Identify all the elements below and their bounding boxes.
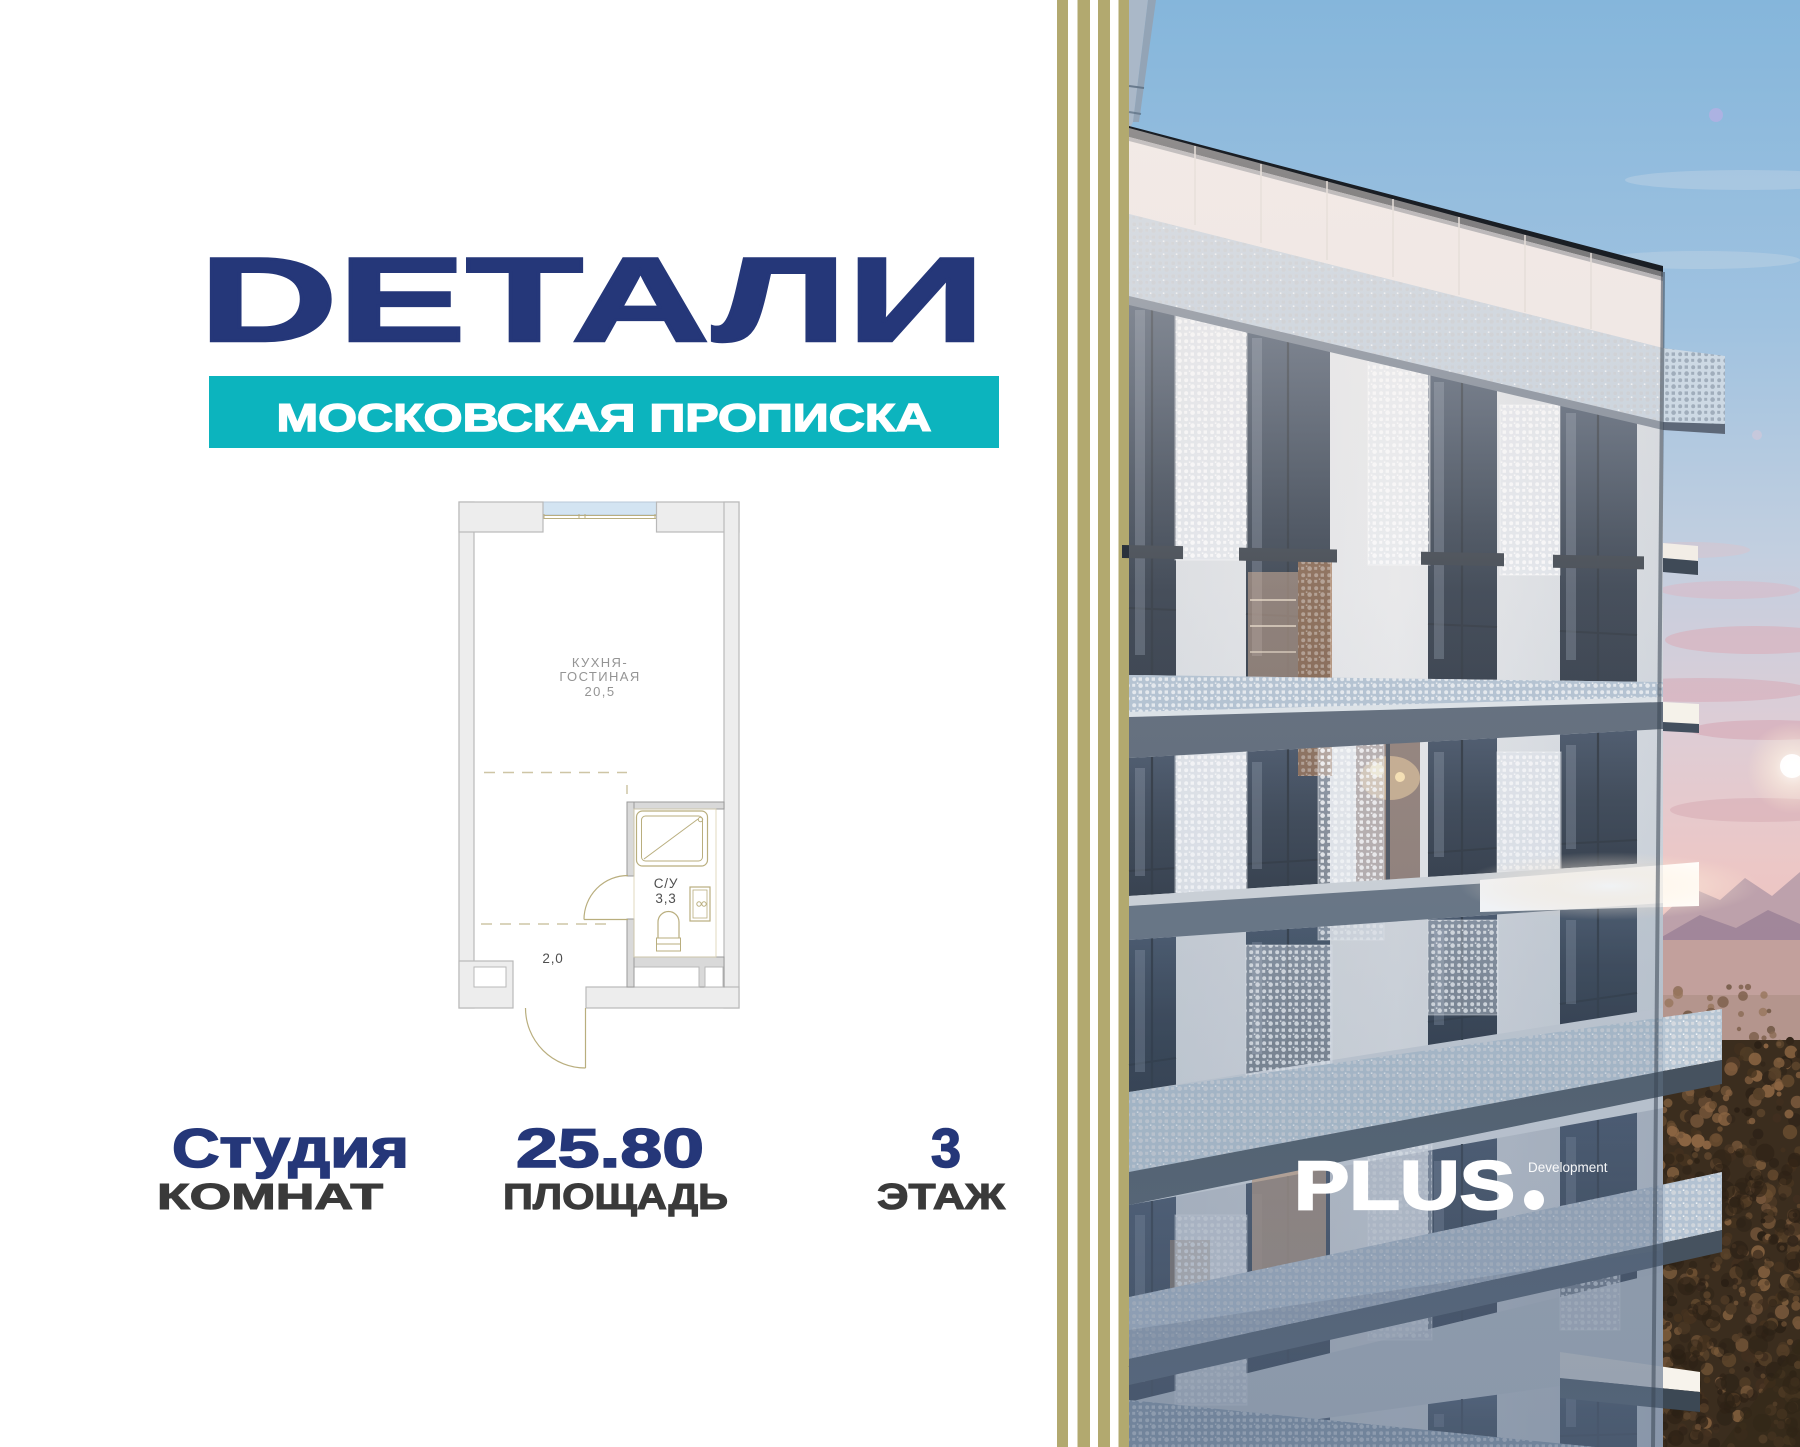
svg-text:КУХНЯ-: КУХНЯ- xyxy=(572,655,628,670)
svg-text:С/У: С/У xyxy=(654,876,678,891)
svg-text:3,3: 3,3 xyxy=(655,891,676,906)
svg-text:ЭТАЖ: ЭТАЖ xyxy=(877,1176,1006,1217)
svg-text:МОСКОВСКАЯ ПРОПИСКА: МОСКОВСКАЯ ПРОПИСКА xyxy=(277,397,932,440)
svg-text:3: 3 xyxy=(931,1117,961,1179)
svg-text:Development: Development xyxy=(1528,1160,1608,1175)
svg-text:КОМНАТ: КОМНАТ xyxy=(157,1176,383,1217)
svg-text:20,5: 20,5 xyxy=(585,684,616,699)
svg-text:25.80: 25.80 xyxy=(516,1117,704,1179)
svg-text:ГОСТИНАЯ: ГОСТИНАЯ xyxy=(559,669,640,684)
svg-text:ПЛОЩАДЬ: ПЛОЩАДЬ xyxy=(503,1176,728,1217)
svg-text:PLUS: PLUS xyxy=(1294,1147,1515,1224)
svg-text:DЕТАЛИ: DЕТАЛИ xyxy=(199,233,985,367)
svg-text:Студия: Студия xyxy=(172,1117,409,1179)
svg-text:2,0: 2,0 xyxy=(542,951,563,966)
